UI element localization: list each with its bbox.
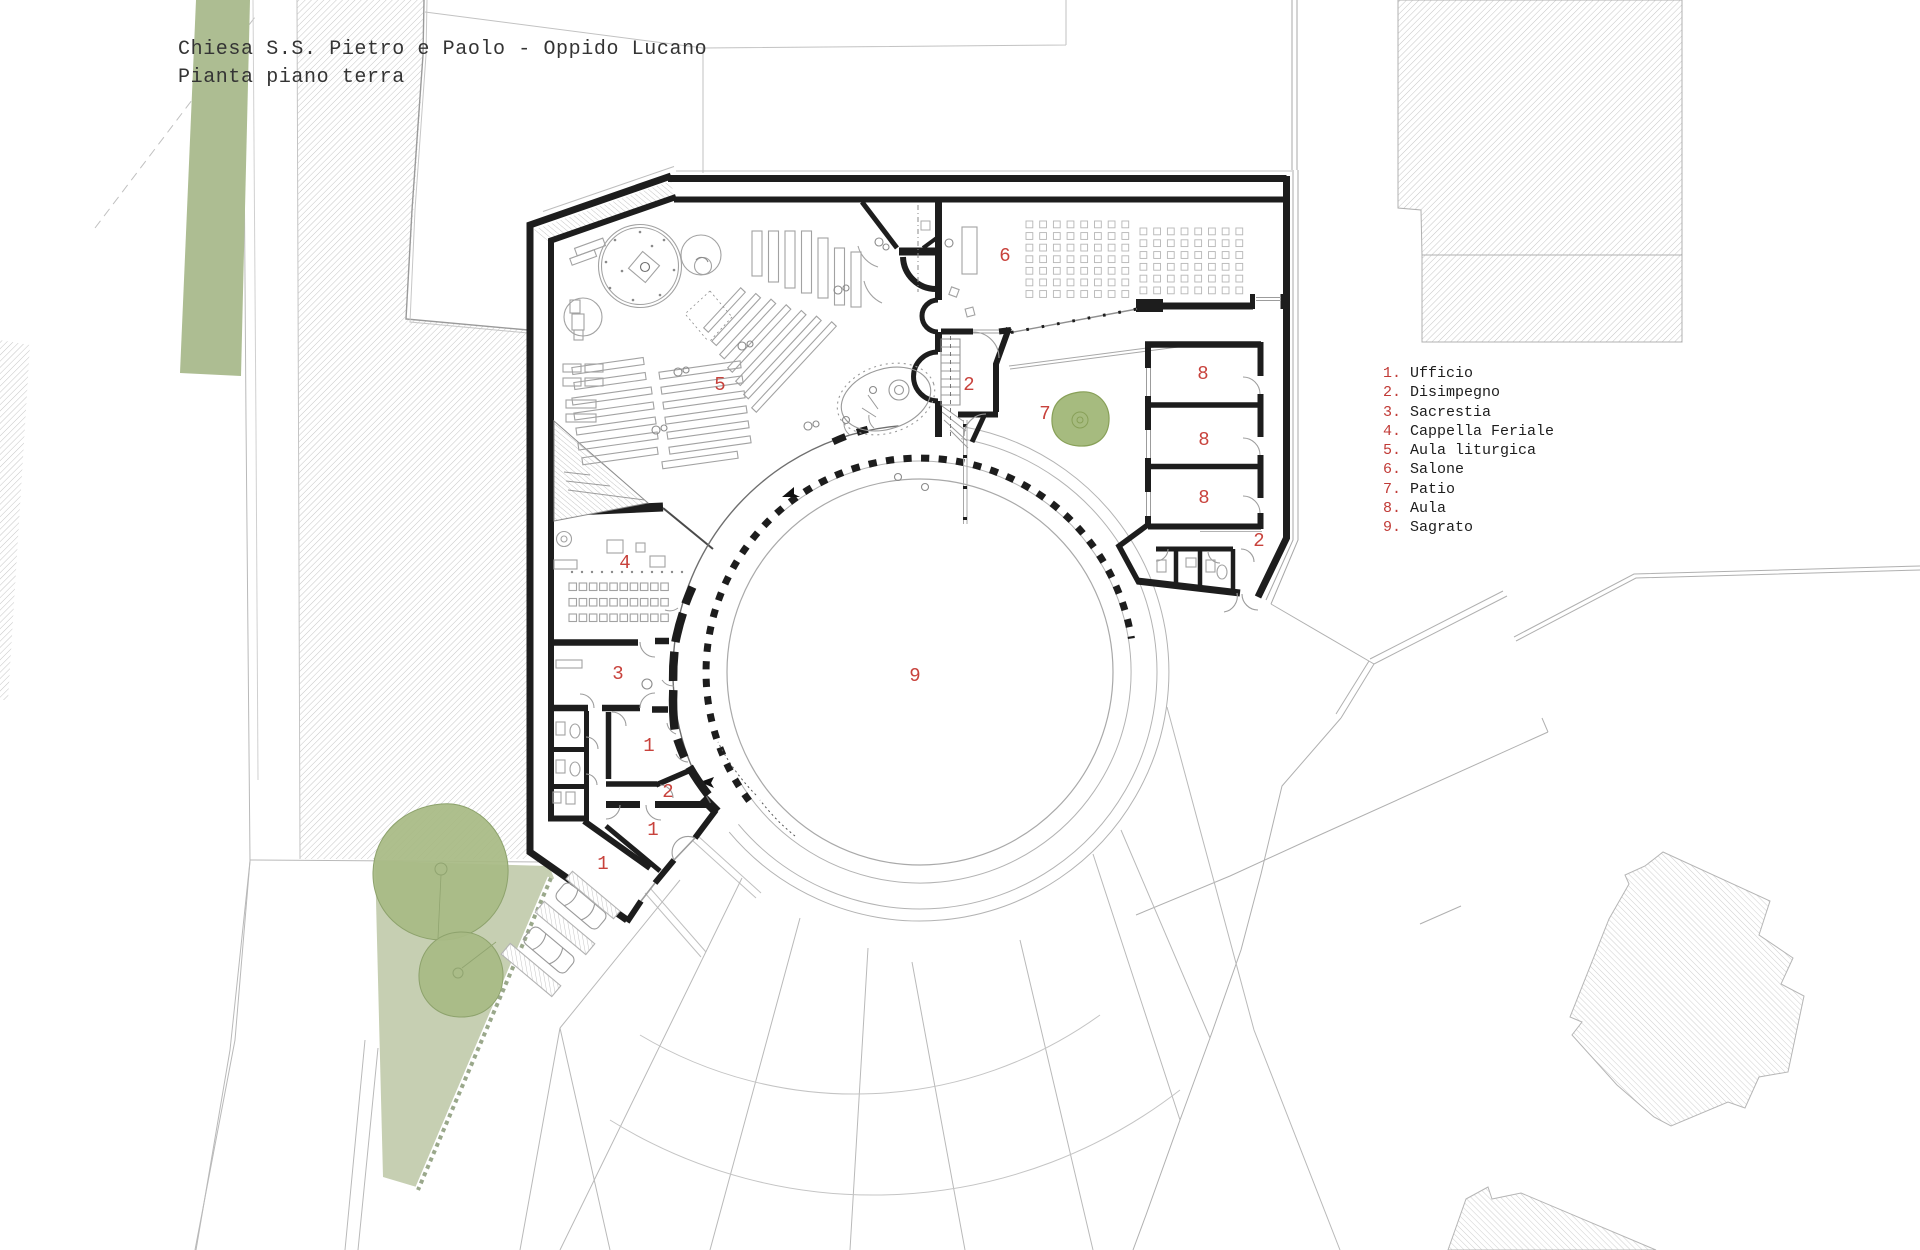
svg-text:5: 5 [714, 374, 725, 396]
svg-text:6: 6 [999, 245, 1010, 267]
svg-text:1: 1 [643, 735, 654, 757]
svg-text:9: 9 [909, 665, 920, 687]
svg-text:4: 4 [619, 552, 630, 574]
svg-text:2: 2 [963, 374, 974, 396]
svg-text:1: 1 [597, 853, 608, 875]
svg-text:8: 8 [1197, 363, 1208, 385]
svg-text:2: 2 [662, 781, 673, 803]
svg-text:2: 2 [1253, 530, 1264, 552]
svg-text:8: 8 [1198, 429, 1209, 451]
svg-text:8: 8 [1198, 487, 1209, 509]
svg-text:3: 3 [612, 663, 623, 685]
svg-text:7: 7 [1039, 403, 1050, 425]
svg-text:1: 1 [647, 819, 658, 841]
